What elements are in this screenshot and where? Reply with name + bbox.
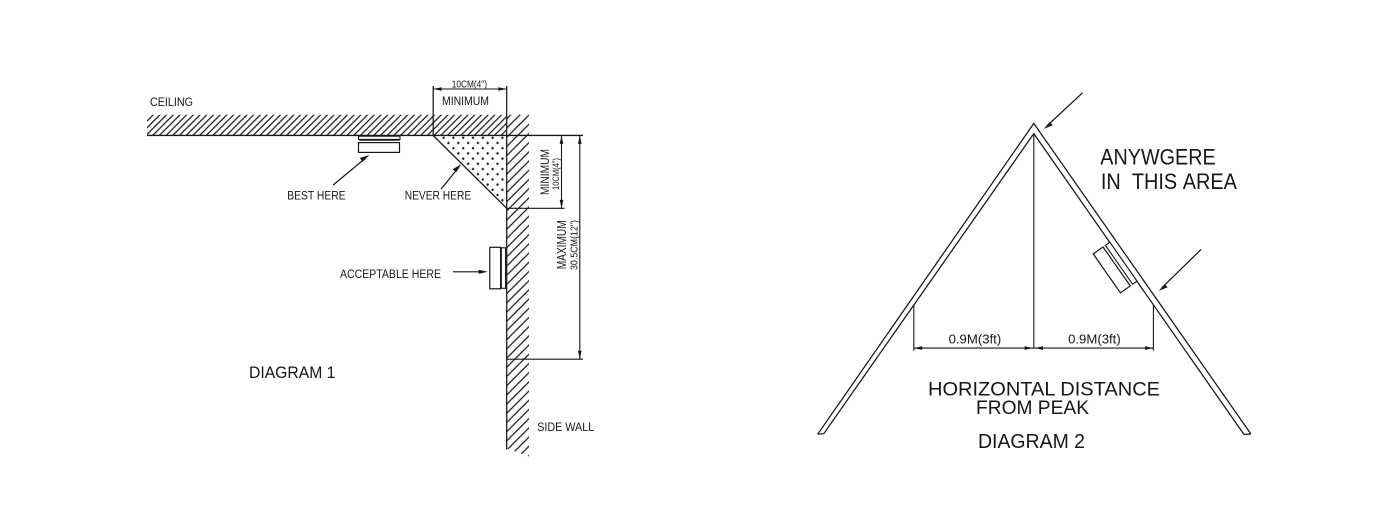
svg-text:SIDE WALL: SIDE WALL bbox=[537, 420, 594, 434]
svg-text:IN THIS AREA: IN THIS AREA bbox=[1101, 169, 1237, 194]
svg-text:CEILING: CEILING bbox=[150, 97, 193, 109]
svg-text:DIAGRAM 2: DIAGRAM 2 bbox=[978, 431, 1085, 453]
svg-text:MINIMUM: MINIMUM bbox=[442, 94, 489, 108]
svg-text:FROM PEAK: FROM PEAK bbox=[976, 397, 1089, 419]
svg-text:10CM(4"): 10CM(4") bbox=[452, 79, 487, 90]
svg-text:0.9M(3ft): 0.9M(3ft) bbox=[949, 332, 1002, 347]
svg-text:MAXIMUM: MAXIMUM bbox=[554, 220, 569, 269]
svg-text:30.5CM(12"): 30.5CM(12") bbox=[569, 220, 580, 270]
svg-text:NEVER HERE: NEVER HERE bbox=[405, 191, 472, 203]
svg-text:ACCEPTABLE HERE: ACCEPTABLE HERE bbox=[340, 269, 441, 281]
svg-text:0.9M(3ft): 0.9M(3ft) bbox=[1068, 332, 1121, 347]
svg-text:ANYWGERE: ANYWGERE bbox=[1100, 145, 1215, 170]
svg-text:DIAGRAM 1: DIAGRAM 1 bbox=[249, 363, 335, 382]
svg-text:10CM(4"): 10CM(4") bbox=[551, 158, 561, 190]
svg-text:BEST HERE: BEST HERE bbox=[287, 191, 346, 203]
